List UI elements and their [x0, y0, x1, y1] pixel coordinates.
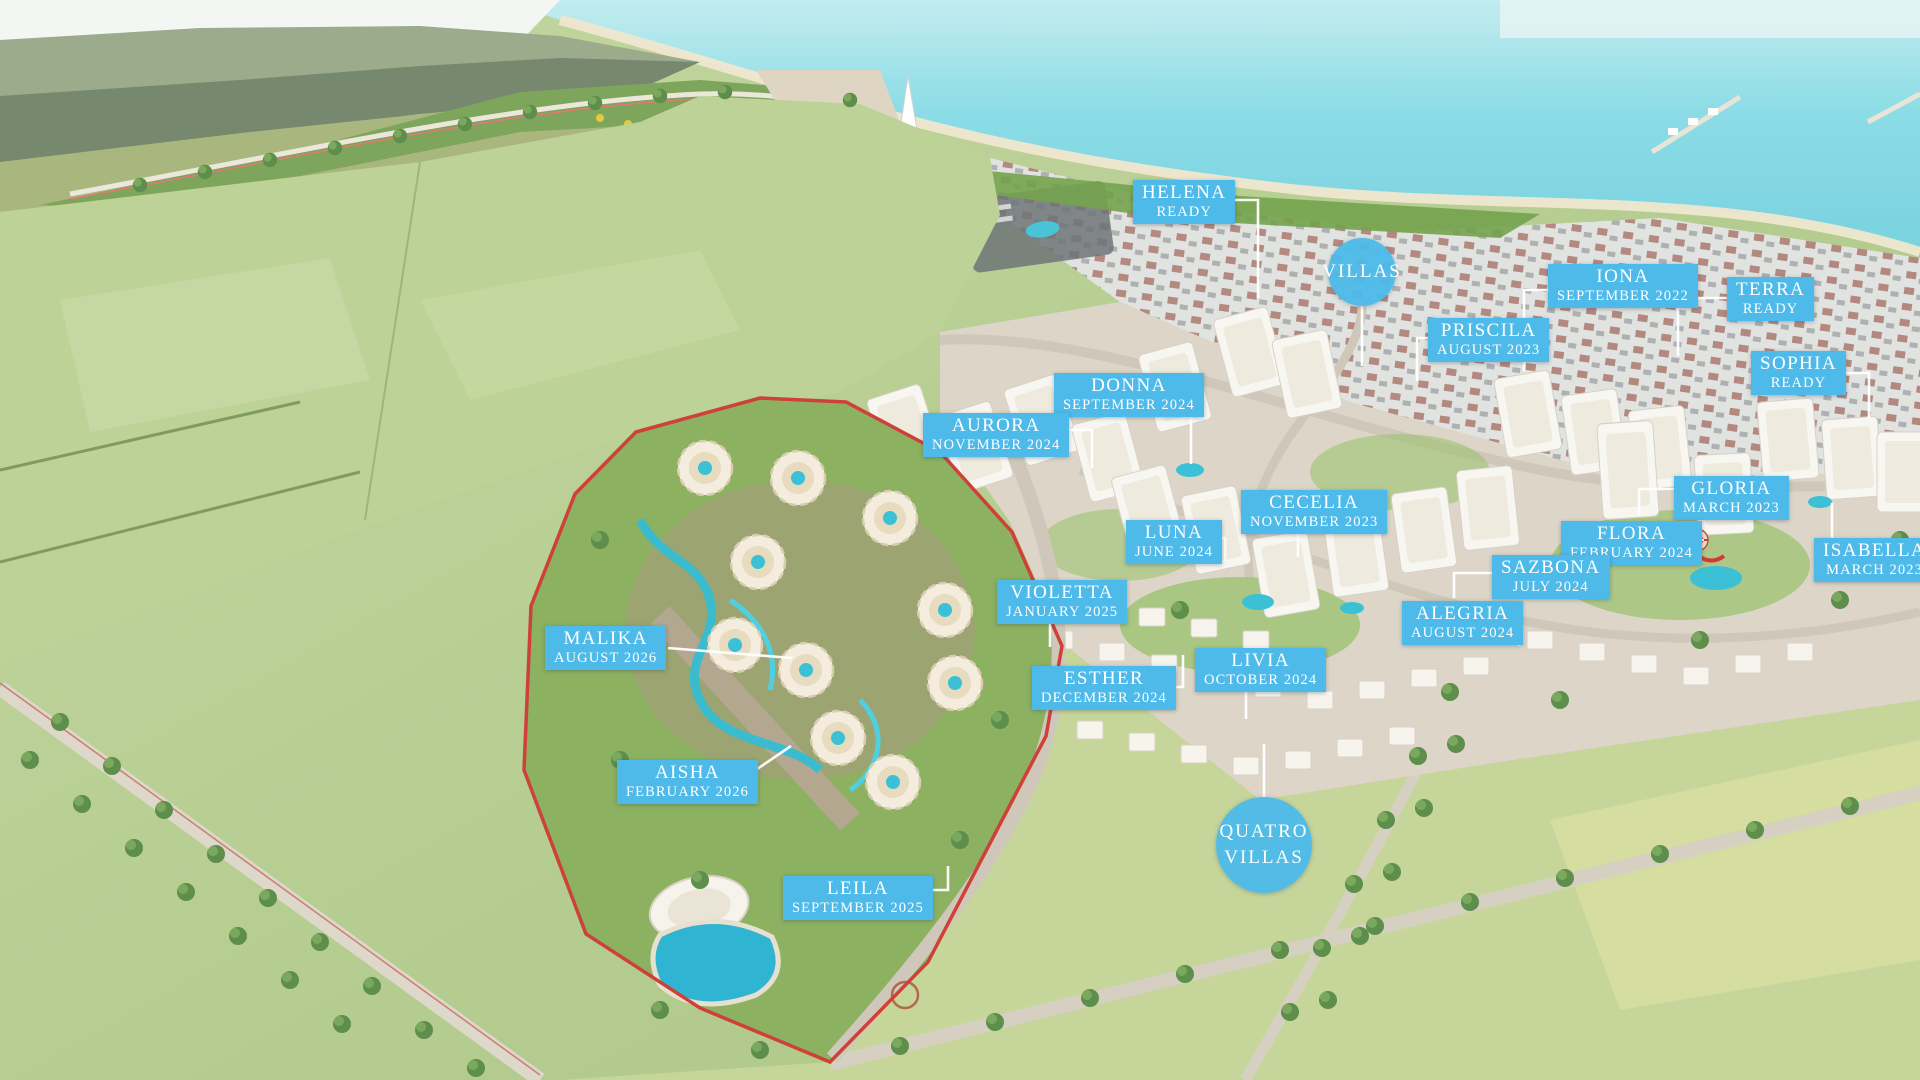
phase-label-leila[interactable]: LEILASEPTEMBER 2025	[783, 876, 933, 920]
phase-label-livia[interactable]: LIVIAOCTOBER 2024	[1195, 648, 1326, 692]
phase-name: IONA	[1557, 267, 1689, 288]
area-label-quatro-villas[interactable]: QUATROVILLAS	[1216, 797, 1312, 893]
phase-name: CECELIA	[1250, 493, 1378, 514]
area-label-line: VILLAS	[1224, 845, 1304, 871]
phase-status: MARCH 2023	[1823, 562, 1920, 578]
phase-status: AUGUST 2026	[554, 650, 657, 666]
phase-label-violetta[interactable]: VIOLETTAJANUARY 2025	[997, 580, 1127, 624]
phase-status: AUGUST 2023	[1437, 342, 1540, 358]
phase-label-terra[interactable]: TERRAREADY	[1727, 277, 1814, 321]
phase-name: LIVIA	[1204, 651, 1317, 672]
phase-labels-layer: HELENAREADYIONASEPTEMBER 2022TERRAREADYP…	[0, 0, 1920, 1080]
phase-label-sazbona[interactable]: SAZBONAJULY 2024	[1492, 555, 1610, 599]
phase-name: ESTHER	[1041, 669, 1167, 690]
phase-label-aisha[interactable]: AISHAFEBRUARY 2026	[617, 760, 758, 804]
phase-label-esther[interactable]: ESTHERDECEMBER 2024	[1032, 666, 1176, 710]
phase-status: READY	[1142, 204, 1226, 220]
phase-label-cecelia[interactable]: CECELIANOVEMBER 2023	[1241, 490, 1387, 534]
phase-name: HELENA	[1142, 183, 1226, 204]
area-label-line: VILLAS	[1322, 259, 1402, 285]
phase-name: ALEGRIA	[1411, 604, 1514, 625]
area-label-villas[interactable]: VILLAS	[1328, 238, 1396, 306]
phase-status: SEPTEMBER 2024	[1063, 397, 1195, 413]
phase-status: READY	[1760, 375, 1837, 391]
phase-status: NOVEMBER 2024	[932, 437, 1060, 453]
area-label-line: QUATRO	[1219, 819, 1308, 845]
phase-status: READY	[1736, 301, 1805, 317]
phase-status: SEPTEMBER 2022	[1557, 288, 1689, 304]
phase-label-helena[interactable]: HELENAREADY	[1133, 180, 1235, 224]
phase-status: NOVEMBER 2023	[1250, 514, 1378, 530]
phase-name: AISHA	[626, 763, 749, 784]
phase-label-sophia[interactable]: SOPHIAREADY	[1751, 351, 1846, 395]
phase-label-priscila[interactable]: PRISCILAAUGUST 2023	[1428, 318, 1549, 362]
phase-label-isabella[interactable]: ISABELLAMARCH 2023	[1814, 538, 1920, 582]
phase-status: FEBRUARY 2026	[626, 784, 749, 800]
phase-status: JULY 2024	[1501, 579, 1601, 595]
masterplan-scene: HELENAREADYIONASEPTEMBER 2022TERRAREADYP…	[0, 0, 1920, 1080]
phase-status: MARCH 2023	[1683, 500, 1780, 516]
phase-name: MALIKA	[554, 629, 657, 650]
phase-name: ISABELLA	[1823, 541, 1920, 562]
phase-label-malika[interactable]: MALIKAAUGUST 2026	[545, 626, 666, 670]
phase-name: PRISCILA	[1437, 321, 1540, 342]
phase-name: LEILA	[792, 879, 924, 900]
phase-name: SAZBONA	[1501, 558, 1601, 579]
phase-status: JANUARY 2025	[1006, 604, 1118, 620]
phase-label-iona[interactable]: IONASEPTEMBER 2022	[1548, 264, 1698, 308]
phase-label-donna[interactable]: DONNASEPTEMBER 2024	[1054, 373, 1204, 417]
phase-name: DONNA	[1063, 376, 1195, 397]
phase-name: TERRA	[1736, 280, 1805, 301]
phase-label-alegria[interactable]: ALEGRIAAUGUST 2024	[1402, 601, 1523, 645]
phase-status: AUGUST 2024	[1411, 625, 1514, 641]
phase-status: JUNE 2024	[1135, 544, 1213, 560]
phase-status: DECEMBER 2024	[1041, 690, 1167, 706]
phase-name: LUNA	[1135, 523, 1213, 544]
phase-name: VIOLETTA	[1006, 583, 1118, 604]
phase-name: AURORA	[932, 416, 1060, 437]
phase-name: GLORIA	[1683, 479, 1780, 500]
phase-label-luna[interactable]: LUNAJUNE 2024	[1126, 520, 1222, 564]
phase-name: SOPHIA	[1760, 354, 1837, 375]
phase-label-aurora[interactable]: AURORANOVEMBER 2024	[923, 413, 1069, 457]
phase-label-gloria[interactable]: GLORIAMARCH 2023	[1674, 476, 1789, 520]
phase-name: FLORA	[1570, 524, 1693, 545]
phase-status: SEPTEMBER 2025	[792, 900, 924, 916]
phase-status: OCTOBER 2024	[1204, 672, 1317, 688]
